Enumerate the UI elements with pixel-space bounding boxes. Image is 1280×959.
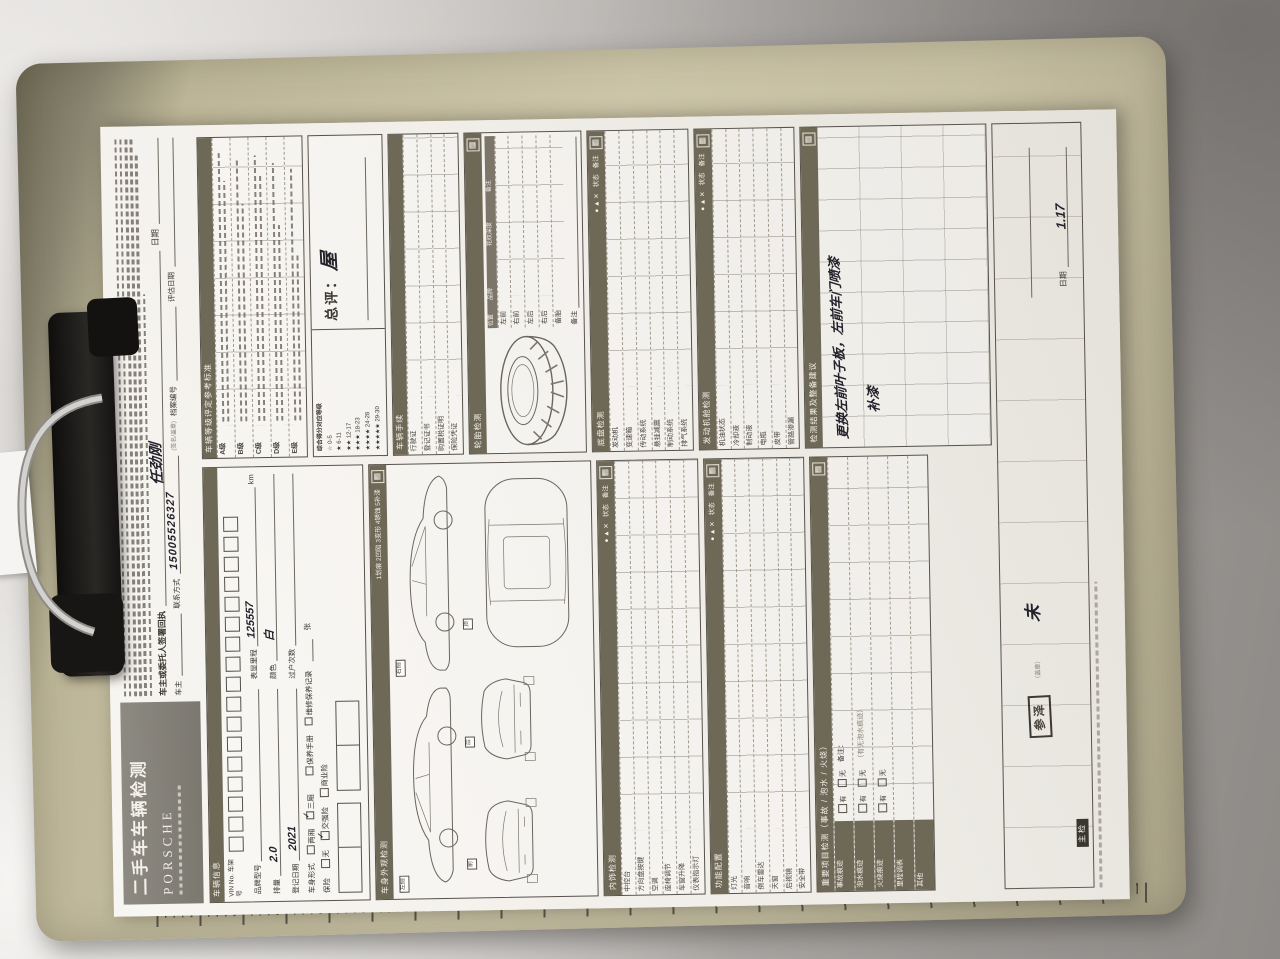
field-regdate-label: 登记日期	[291, 864, 301, 894]
checkbox-yes	[838, 805, 847, 814]
features-icon: ▦	[706, 464, 719, 477]
vin-box	[224, 577, 239, 592]
chassis-icon: ▦	[590, 136, 603, 149]
footer-date-label: 日期	[1059, 271, 1069, 287]
inspection-form-paper: 二手车车辆检测 PORSCHE 车主或委托人签署回执 任劲刚 日期	[100, 109, 1130, 917]
stamp-hint: （盖章）	[1036, 658, 1044, 682]
owner-label: 车主	[174, 681, 184, 696]
handwritten-color: 白	[263, 630, 277, 642]
owner-line	[171, 614, 183, 676]
edge-fine-print	[1095, 581, 1103, 887]
row-label: 登记证书	[422, 396, 436, 454]
result-icon: ▦	[803, 132, 816, 145]
checkbox-no	[858, 779, 867, 788]
row-label: 后视镜	[783, 828, 797, 892]
row-label: 电瓶	[758, 384, 772, 448]
result-section: 检测结果及整备建议 ▦ 更换左前叶子板，左前车门喷漆 补漆	[800, 123, 993, 448]
row-label: 火烧痕迹	[875, 820, 895, 890]
field-displacement-line: 2.0	[267, 689, 281, 876]
form-title: 二手车车辆检测	[127, 711, 151, 895]
row-label: 管路渗漏	[785, 384, 799, 448]
view-tag-top: 顶	[463, 618, 473, 629]
row-label: 座椅调节	[663, 830, 677, 894]
star-legend-line: ★★★★★ 29-30	[372, 334, 384, 450]
vin-box	[224, 617, 239, 632]
note-col-label: 备注	[699, 153, 707, 166]
status-legend: ● ▲ ✕	[593, 193, 601, 213]
vin-box	[228, 797, 243, 812]
checkbox-yes	[878, 804, 887, 813]
overall-rating: 总评： 屋	[308, 135, 385, 329]
field-transfer-line	[283, 474, 297, 646]
option-no-insurance: 无	[322, 850, 331, 858]
interior-icon: ▦	[599, 466, 612, 479]
view-tag-front: 前	[467, 858, 477, 869]
logo-block: 二手车车辆检测 PORSCHE	[120, 701, 204, 904]
stamp-box: 参泽	[1028, 695, 1053, 738]
tire-table: 位置 品牌 花纹深度 备注 左前 右前 左后 右后 备胎 备注	[485, 135, 582, 329]
vin-box	[223, 557, 238, 572]
vin-box	[223, 537, 238, 552]
yes-label: 有	[860, 795, 867, 802]
file-no-label: 档案编号	[168, 386, 178, 416]
tire-title: 轮胎检测	[473, 412, 484, 448]
row-label: 车窗升降	[677, 830, 691, 894]
field-brand-label: 品牌型号	[253, 864, 263, 894]
row-label: 倒车雷达	[756, 828, 770, 892]
insurance-label: 保险	[322, 878, 332, 893]
vin-box	[226, 717, 241, 732]
logo-subtext	[178, 785, 183, 895]
field-mileage-unit: km	[246, 474, 256, 484]
row-label: 排气系统	[679, 386, 693, 450]
clip-jaw-top	[87, 297, 140, 358]
overall-rating-label: 总评：	[323, 273, 340, 321]
row-label: 制动液	[744, 385, 758, 449]
checkbox-maintenance-book	[305, 767, 314, 776]
chassis-title: 底盘检测	[596, 410, 607, 446]
row-label: 里程调表	[895, 820, 915, 890]
vin-label: VIN No. 车架号	[228, 855, 245, 897]
rating-line	[355, 157, 369, 320]
note-col-label: 备注	[709, 483, 717, 496]
handwritten-phone: 15005526327	[165, 491, 183, 570]
documents-table: 车辆手续 行驶证 登记证书 购置税证明 保险凭证	[388, 133, 465, 456]
row-label: 事故痕迹	[835, 821, 855, 891]
vin-box	[228, 837, 243, 852]
vin-box	[228, 817, 243, 832]
checkbox-no	[838, 779, 847, 788]
checkbox-compulsory-insurance: ✓	[321, 832, 330, 841]
row-hint: （有无泡水痕迹）	[858, 706, 868, 762]
sign-hint: (签名/盖章)	[171, 421, 179, 451]
no-label: 无	[860, 770, 867, 777]
row-label: 安全带	[797, 828, 811, 892]
status-legend: ● ▲ ✕	[709, 521, 717, 541]
accident-table: 重要项目检测（事故 / 泡水 / 火烧） ▦ 事故痕迹 有无备注： 泡水痕迹 有…	[809, 455, 936, 893]
vin-box	[224, 597, 239, 612]
footer-date-line: 1.17	[1056, 147, 1069, 267]
row-label: 备胎	[553, 295, 566, 327]
engine-bay-title: 发动机舱检测	[702, 390, 713, 444]
row-label: 悬挂减震	[651, 386, 665, 450]
option-hatchback: 两厢	[307, 829, 316, 844]
field-displacement-label: 排量	[272, 879, 282, 894]
car-rear-view-svg	[474, 668, 538, 769]
accident-icon: ▦	[812, 462, 825, 475]
eval-date-label: 评估日期	[166, 272, 176, 302]
vin-box	[227, 777, 242, 792]
grade-row-label: A级	[217, 426, 235, 458]
header-right: 车主或委托人签署回执 任劲刚 日期 车主 联系方式 15005526327 (签…	[110, 137, 200, 696]
row-label: 左前	[498, 296, 511, 328]
checkbox-sedan: ✓	[306, 811, 315, 820]
vin-box	[227, 757, 242, 772]
exterior-legend: 1划痕 2凹陷 3变形 4锈蚀 5补漆	[374, 489, 384, 579]
engine-bay-table: 发动机舱检测 ● ▲ ✕状态备注▦ 机油状态 冷却液 制动液 电瓶 皮带 管路渗…	[693, 127, 800, 451]
row-label: 变速箱	[624, 387, 638, 451]
status-legend: ● ▲ ✕	[700, 191, 708, 211]
checkbox-commercial-insurance	[320, 789, 329, 798]
row-label: 传动系统	[638, 386, 652, 450]
photo-scene: 二手车车辆检测 PORSCHE 车主或委托人签署回执 任劲刚 日期	[0, 0, 1280, 959]
checkbox-hatchback	[307, 846, 316, 855]
status-col-label: 状态	[699, 172, 707, 185]
vin-box	[223, 517, 238, 532]
status-legend: ● ▲ ✕	[603, 523, 611, 543]
chassis-table: 底盘检测 ● ▲ ✕状态备注▦ 发动机 变速箱 传动系统 悬挂减震 制动系统 排…	[587, 129, 694, 453]
inspector-tag: 主检	[1077, 819, 1089, 847]
car-side-view-svg	[398, 468, 458, 675]
grade-row-label: E级	[289, 424, 307, 456]
handwritten-note-2: 补漆	[866, 386, 884, 413]
car-icon: ▦	[371, 470, 384, 483]
handwritten-date: 1.17	[1052, 203, 1070, 229]
vehicle-fields: 品牌型号 表显里程125557km 排量2.0 颜色白 登记日期2021 过户次…	[241, 467, 304, 902]
vin-box	[225, 677, 240, 692]
vehicle-info-title: 车辆信息	[212, 861, 223, 897]
receipt-date-label: 日期	[149, 229, 160, 246]
row-label: 皮带	[772, 384, 786, 448]
handwritten-check: ✓	[301, 811, 312, 819]
tire-col: 位置	[488, 300, 496, 326]
row-label: 中控台	[622, 831, 636, 895]
grade-standards-table: 车辆等级评定参考标准 A级 B级 C级 D级 E级	[196, 135, 308, 459]
row-label: 泡水痕迹	[855, 821, 875, 891]
tire-section: 轮胎检测 ▦ 位置 品牌	[463, 131, 587, 455]
row-label: 右后	[539, 295, 552, 327]
yes-label: 有	[840, 795, 847, 802]
grade-row-label: D级	[271, 425, 289, 457]
receipt-label: 车主或委托人签署回执	[156, 611, 168, 696]
vin-box	[226, 697, 241, 712]
note-col-label: 备注	[593, 155, 601, 168]
row-label: 冷却液	[730, 385, 744, 449]
row-label: 发动机	[610, 387, 624, 451]
row-label: 保险凭证	[449, 396, 463, 454]
car-diagrams: 左侧 右侧 前 后	[386, 461, 598, 898]
status-col-label: 状态	[593, 174, 601, 187]
form-header: 二手车车辆检测 PORSCHE 车主或委托人签署回执 任劲刚 日期	[110, 137, 203, 904]
checkbox-yes	[858, 804, 867, 813]
grade-row-label: B级	[235, 425, 253, 457]
engine-icon: ▦	[696, 134, 709, 147]
no-label: 无	[840, 770, 847, 777]
field-regdate-line: 2021	[286, 689, 300, 861]
handwritten-note-1: 更换左前叶子板，左前车门喷漆	[827, 257, 853, 440]
vin-box	[225, 657, 240, 672]
checkbox-no-insurance	[321, 860, 330, 869]
vehicle-info-section: 车辆信息 VIN No. 车架号 品牌型号 表显里程125557km 排量2.0…	[202, 464, 371, 903]
mini-table	[335, 700, 361, 790]
tire-note-line	[566, 137, 580, 308]
right-column: 车辆等级评定参考标准 A级 B级 C级 D级 E级 综合得分对应等级 ☆ 0-5…	[196, 123, 992, 459]
contact-line: 15005526327	[168, 456, 181, 574]
option-commercial-insurance: 商业险	[320, 764, 329, 787]
checkbox-no	[878, 778, 887, 787]
interior-title: 内饰检测	[608, 854, 619, 890]
tire-icon: ▦	[467, 138, 480, 151]
result-title: 检测结果及整备建议	[808, 361, 819, 442]
row-label: 其他	[915, 819, 935, 889]
records-count-unit: 张	[303, 623, 313, 631]
rating-box: 综合得分对应等级 ☆ 0-5 ★ 6-11 ★★ 12-17 ★★★ 18-23…	[307, 134, 388, 457]
vin-box	[226, 737, 241, 752]
status-col-label: 状态	[602, 504, 610, 517]
car-top-view-svg	[474, 472, 579, 654]
star-legend: 综合得分对应等级 ☆ 0-5 ★ 6-11 ★★ 12-17 ★★★ 18-23…	[312, 328, 387, 456]
contact-label: 联系方式	[172, 579, 182, 609]
row-label: 灯光	[728, 829, 742, 893]
mini-table	[337, 802, 363, 892]
row-label: 天窗	[769, 828, 783, 892]
row-label: 空调	[649, 830, 663, 894]
receipt-date-line	[148, 138, 160, 224]
option-sedan: 三厢	[306, 794, 315, 809]
tire-illustration-svg	[488, 331, 582, 451]
footer-blank-line	[1019, 148, 1033, 298]
accident-title: 重要项目检测（事故 / 泡水 / 火烧）	[819, 741, 832, 886]
handwritten-mileage: 125557	[243, 601, 259, 638]
tire-note-label: 备注	[571, 311, 580, 325]
porsche-wordmark: PORSCHE	[158, 711, 177, 895]
no-label: 无	[880, 769, 887, 776]
car-side-view-svg	[402, 684, 462, 891]
footer-box: 参泽 （盖章） 未 日期 1.17 主检	[992, 122, 1095, 889]
row-label: 方向盘按键	[635, 830, 649, 894]
features-table: 功能配置 ● ▲ ✕状态备注▦ 灯光 音响 倒车雷达 天窗 后视镜 安全带	[703, 457, 812, 895]
tire-col: 备注	[486, 138, 494, 192]
handwritten-rating: 屋	[318, 251, 343, 271]
clip-wire-handle	[6, 380, 116, 660]
handwritten-check: ✓	[316, 832, 327, 840]
note-col-label: 备注	[602, 485, 610, 498]
field-color-line: 白	[264, 474, 278, 661]
stamp-text: 参泽	[1032, 702, 1047, 731]
handwritten-displacement: 2.0	[267, 846, 282, 862]
mini-tables	[326, 465, 370, 900]
field-mileage-line: 125557	[245, 487, 259, 646]
handwritten-wei: 未	[1023, 604, 1045, 622]
records-count-line	[302, 639, 313, 661]
result-writing-area: 更换左前叶子板，左前车门喷漆 补漆	[818, 124, 992, 447]
handwritten-signature: 任劲刚	[147, 443, 167, 486]
row-label: 右前	[512, 296, 525, 328]
tire-col: 花纹深度	[487, 192, 495, 246]
receipt-signature-line: 任劲刚	[149, 251, 166, 606]
status-col-label: 状态	[709, 502, 717, 515]
note-label: 备注：	[838, 741, 847, 762]
yes-label: 有	[880, 795, 887, 802]
tire-col: 品牌	[487, 246, 495, 300]
row-label: 仪表指示灯	[690, 830, 704, 894]
left-column: 车辆信息 VIN No. 车架号 品牌型号 表显里程125557km 排量2.0…	[202, 453, 1000, 903]
row-label: 机油状态	[717, 385, 731, 449]
checkbox-repair-records	[304, 717, 313, 726]
vin-box	[225, 637, 240, 652]
field-mileage-label: 表显里程	[249, 649, 259, 679]
handwritten-regdate: 2021	[285, 826, 300, 851]
option-compulsory-insurance: 交强险	[321, 807, 330, 830]
exterior-section: 车身外观检测 1划痕 2凹陷 3变形 4锈蚀 5补漆 ▦ 左侧 右侧	[368, 460, 599, 900]
exterior-title: 车身外观检测	[379, 840, 390, 894]
field-transfer-label: 过户次数	[287, 649, 297, 679]
row-label: 制动系统	[665, 386, 679, 450]
interior-table: 内饰检测 ● ▲ ✕状态备注▦ 中控台 方向盘按键 空调 座椅调节 车窗升降 仪…	[596, 459, 705, 897]
row-label: 左后	[525, 295, 538, 327]
file-no-line	[165, 307, 177, 381]
row-label: 音响	[742, 829, 756, 893]
field-color-label: 颜色	[268, 664, 278, 679]
features-title: 功能配置	[714, 852, 725, 888]
grade-title: 车辆等级评定参考标准	[203, 363, 215, 453]
view-tag-rear: 后	[465, 736, 475, 747]
option-repair-records: 维修保养记录	[304, 670, 314, 715]
documents-title: 车辆手续	[395, 414, 406, 450]
eval-date-line	[163, 138, 176, 268]
field-brand-line	[248, 689, 262, 861]
row-label: 购置税证明	[436, 396, 450, 454]
grade-row-label: C级	[253, 425, 271, 457]
row-label: 行驶证	[408, 396, 422, 454]
option-maintenance-book: 保养手册	[305, 735, 315, 765]
car-front-view-svg	[476, 790, 540, 891]
body-style-label: 车身形式	[307, 863, 317, 893]
